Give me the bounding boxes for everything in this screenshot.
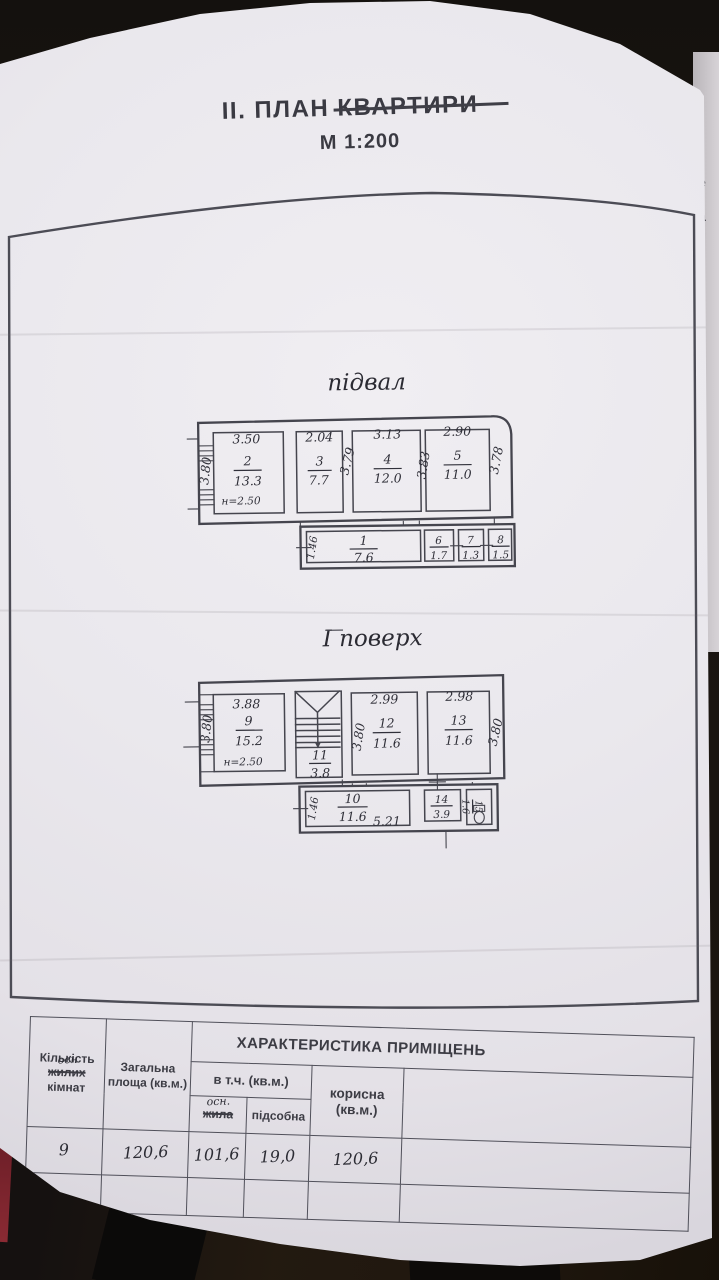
dim-side: 3.80	[196, 456, 214, 485]
value-living-area: 101,6	[188, 1132, 246, 1180]
height-note: н=2.50	[223, 756, 263, 768]
dim-side: 3.80	[349, 722, 368, 752]
value-total-area: 120,6	[102, 1129, 189, 1178]
room-area: 12.0	[374, 470, 402, 485]
dim-top: 3.50	[232, 431, 260, 446]
dim-side: 1.46	[305, 535, 321, 560]
struck-word-wrap: осн. жила	[203, 1107, 234, 1122]
room-number: 2	[243, 453, 252, 468]
empty-cell	[186, 1178, 244, 1218]
wc-label: 15 1.6	[460, 799, 484, 814]
dim-top: 2.04	[304, 429, 333, 444]
dim-side: 3.80	[197, 714, 215, 743]
room-number: 9	[245, 713, 253, 728]
document-page: ІІ. ПЛАН КВАРТИРИ М 1:200 підвал	[0, 0, 719, 1280]
empty-cell	[243, 1179, 308, 1219]
empty-header-cell	[402, 1068, 693, 1147]
handwritten-correction: осн	[57, 1054, 78, 1068]
room-number: 11	[312, 747, 328, 762]
room-number: 10	[344, 791, 360, 806]
handwritten-value: 9	[59, 1141, 70, 1160]
room-area: 11.6	[445, 732, 473, 747]
handwritten-value: 120,6	[332, 1149, 379, 1170]
room-area: 11.6	[373, 735, 401, 750]
room-area: 1.3	[462, 549, 479, 561]
value-auxiliary-area: 19,0	[244, 1133, 309, 1181]
handwritten-value: 19,0	[259, 1147, 295, 1167]
first-floor-plan: І поверх 3.88 2.99 2.98	[182, 624, 507, 851]
room-area: 13.3	[234, 473, 262, 488]
header-useful-area: корисна (кв.м.)	[310, 1065, 404, 1138]
room-number: 5	[453, 448, 461, 463]
dim-extra: 5.21	[373, 813, 401, 828]
handwritten-correction: осн.	[206, 1096, 230, 1110]
dim-side: 1.46	[306, 796, 322, 821]
room-number: 4	[382, 452, 391, 467]
dim-side: 3.79	[336, 446, 357, 477]
dim-side: 3.83	[413, 450, 432, 480]
handwritten-value: 120,6	[122, 1143, 169, 1164]
room-number: 7	[467, 535, 474, 547]
photo-of-document: е а ІІ. ПЛАН КВАРТИРИ М 1:200 підвал	[0, 0, 719, 1280]
dim-top: 2.99	[369, 691, 398, 706]
header-line: кімнат	[31, 1079, 102, 1095]
handwritten-value: 101,6	[193, 1145, 240, 1166]
room-area: 7.7	[309, 472, 329, 487]
dim-top: 2.90	[442, 424, 471, 439]
empty-cell	[307, 1181, 400, 1222]
room-area: 3.9	[433, 809, 450, 821]
dim-side: 3.80	[485, 717, 506, 748]
room-number: 1	[359, 533, 367, 548]
header-living-area: осн. жила	[189, 1096, 247, 1134]
room-area: 11.0	[444, 467, 472, 482]
room-number: 8	[497, 534, 504, 546]
room-area: 1.6	[460, 799, 471, 814]
dim-top: 3.88	[232, 696, 260, 711]
room-number: 6	[435, 535, 442, 547]
stairs-treads	[295, 691, 340, 748]
room-number: 13	[451, 713, 467, 728]
room-area: 15.2	[235, 733, 263, 748]
header-total-area: Загальна площа (кв.м.)	[103, 1019, 192, 1132]
struck-word: КВАРТИРИ	[337, 91, 479, 123]
room-area: 7.6	[354, 550, 374, 565]
height-note: н=2.50	[221, 495, 261, 507]
basement-label: підвал	[327, 369, 406, 396]
room-area: 11.6	[339, 809, 367, 824]
header-auxiliary-area: підсобна	[246, 1097, 311, 1135]
drawing-frame	[9, 193, 698, 1008]
header-room-count: Кількість осн жилих кімнат	[27, 1017, 106, 1129]
characteristics-table: Кількість осн жилих кімнат Загальна площ…	[24, 1016, 696, 1232]
basement-plan: підвал 3.50 2.04 3.13 2.90 3.80 3.79	[186, 368, 514, 570]
header-including: в т.ч. (кв.м.)	[190, 1062, 312, 1100]
first-floor-label: І поверх	[322, 625, 423, 652]
struck-word: жилих	[48, 1065, 86, 1080]
room-number: 3	[316, 453, 324, 468]
dim-top: 2.98	[444, 688, 473, 703]
struck-word-wrap: осн жилих	[48, 1065, 86, 1080]
dim-top: 3.13	[373, 426, 401, 441]
room-area: 1.5	[492, 549, 509, 561]
room-number: 15	[473, 800, 484, 812]
section-title: ІІ. ПЛАН	[221, 95, 329, 125]
room-number: 12	[379, 715, 395, 730]
toilet-bowl	[474, 811, 484, 823]
room-area: 3.8	[310, 765, 330, 780]
value-room-count: 9	[26, 1126, 103, 1174]
room-number: 14	[435, 794, 449, 806]
value-useful-area: 120,6	[308, 1135, 401, 1184]
room-area: 1.7	[430, 550, 447, 562]
